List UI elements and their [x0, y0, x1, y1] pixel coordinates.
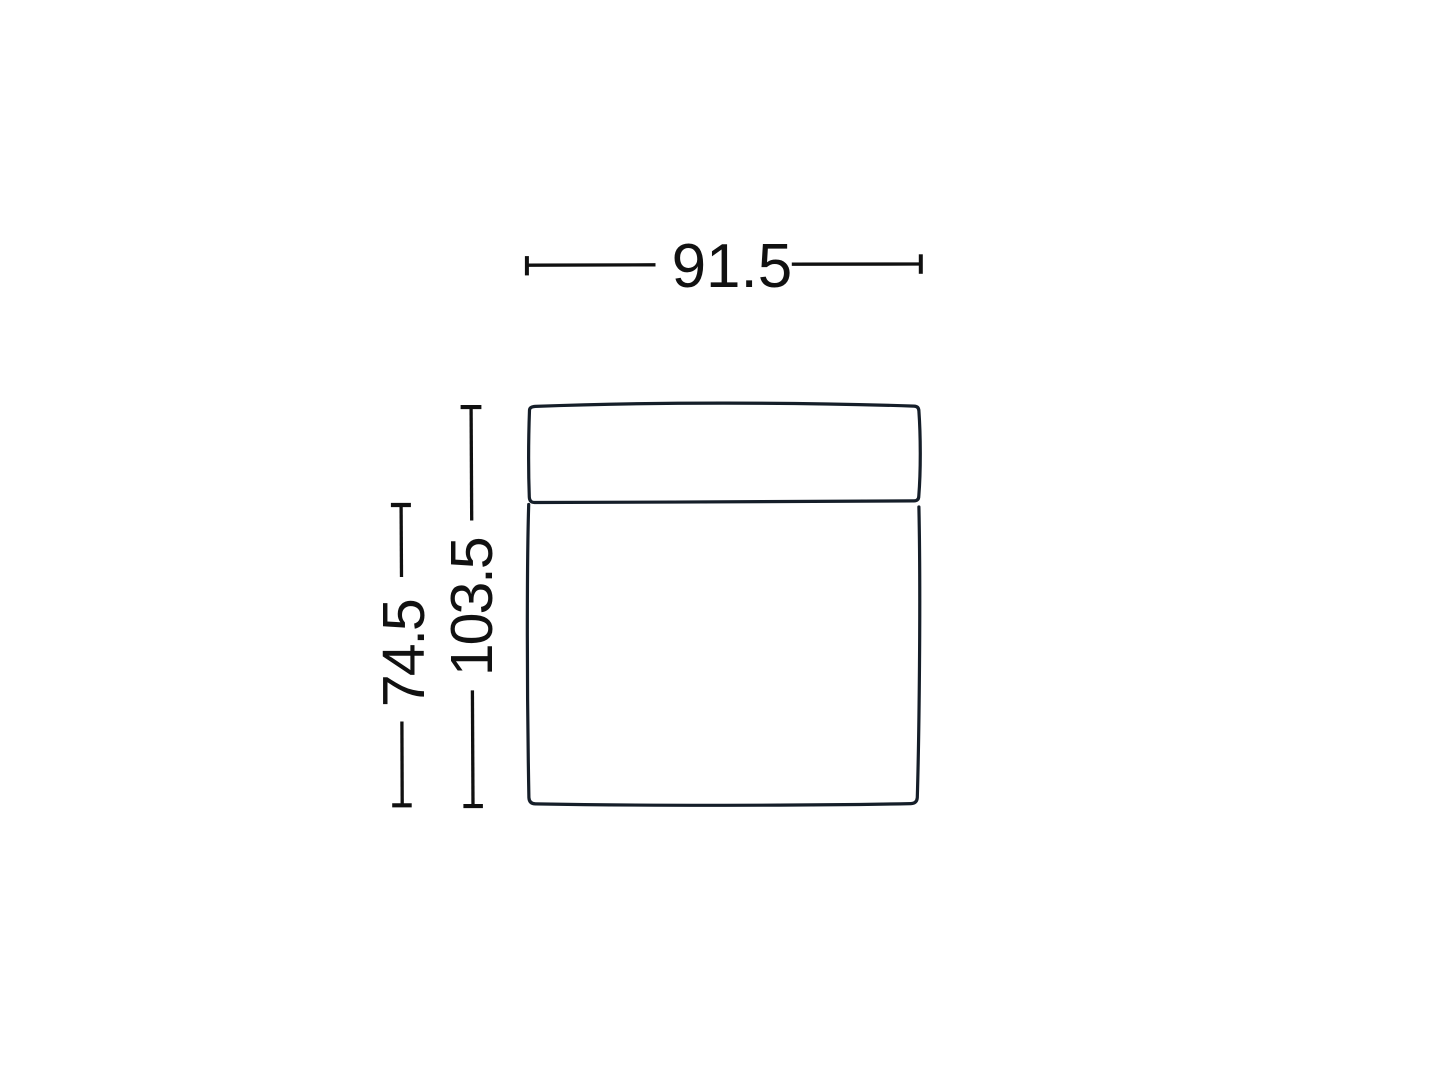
svg-text:91.5: 91.5	[672, 232, 793, 301]
svg-text:103.5: 103.5	[439, 538, 505, 676]
svg-text:74.5: 74.5	[371, 600, 437, 707]
